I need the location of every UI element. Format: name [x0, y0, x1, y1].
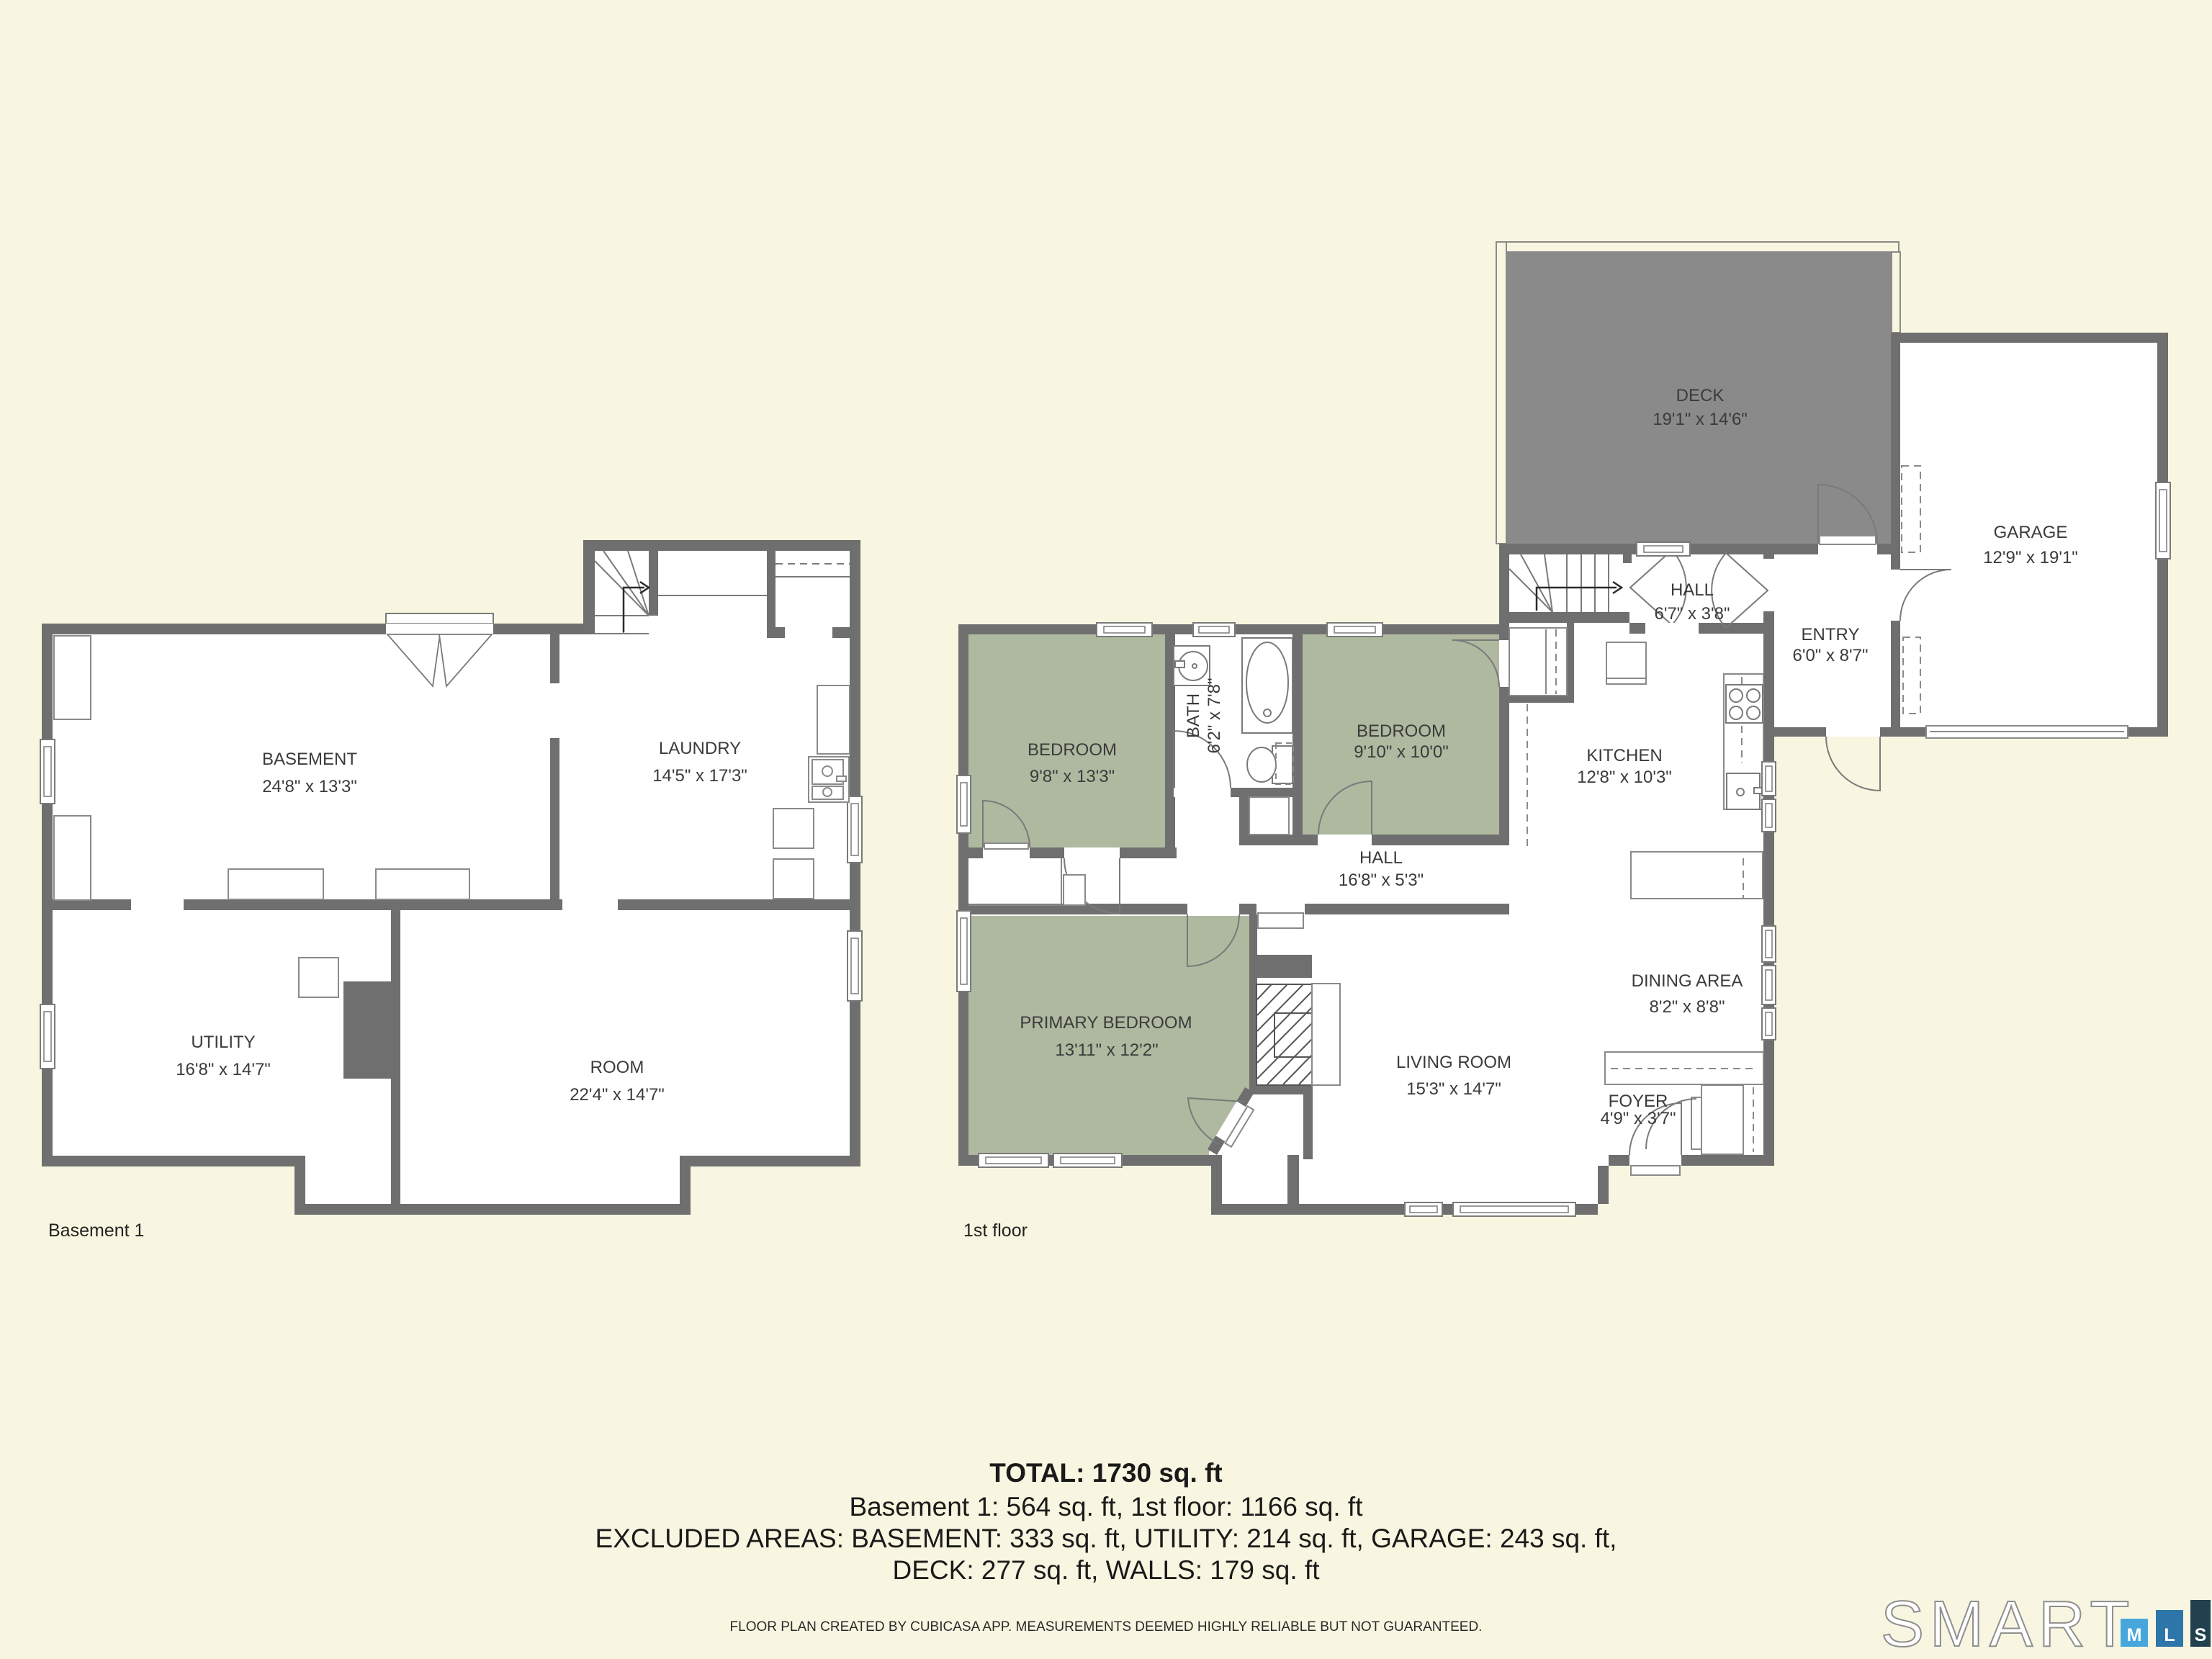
svg-text:DINING AREA: DINING AREA	[1632, 971, 1743, 991]
svg-text:ROOM: ROOM	[590, 1058, 644, 1077]
svg-text:DECK: 277 sq. ft, WALLS: 179 s: DECK: 277 sq. ft, WALLS: 179 sq. ft	[893, 1555, 1321, 1585]
svg-text:16'8" x 14'7": 16'8" x 14'7"	[176, 1060, 271, 1079]
svg-text:LAUNDRY: LAUNDRY	[659, 739, 741, 758]
svg-text:FLOOR PLAN CREATED BY CUBICASA: FLOOR PLAN CREATED BY CUBICASA APP. MEAS…	[730, 1619, 1483, 1635]
svg-text:6'0" x 8'7": 6'0" x 8'7"	[1793, 646, 1869, 665]
svg-text:16'8" x 5'3": 16'8" x 5'3"	[1339, 871, 1424, 890]
svg-text:BEDROOM: BEDROOM	[1357, 721, 1446, 741]
svg-text:HALL: HALL	[1671, 580, 1714, 600]
svg-text:LIVING ROOM: LIVING ROOM	[1396, 1053, 1511, 1072]
svg-text:1st floor: 1st floor	[963, 1220, 1028, 1241]
svg-text:15'3" x 14'7": 15'3" x 14'7"	[1406, 1079, 1501, 1099]
svg-text:4'9" x 3'7": 4'9" x 3'7"	[1601, 1109, 1676, 1128]
svg-text:M: M	[2127, 1625, 2142, 1645]
svg-text:HALL: HALL	[1359, 848, 1403, 868]
svg-text:9'8" x 13'3": 9'8" x 13'3"	[1030, 767, 1115, 786]
svg-text:Basement 1: 564 sq. ft, 1st fl: Basement 1: 564 sq. ft, 1st floor: 1166 …	[850, 1492, 1364, 1521]
svg-text:Basement 1: Basement 1	[48, 1220, 144, 1241]
svg-text:19'1" x 14'6": 19'1" x 14'6"	[1653, 410, 1748, 429]
svg-text:24'8" x 13'3": 24'8" x 13'3"	[262, 777, 357, 796]
svg-text:13'11" x 12'2": 13'11" x 12'2"	[1055, 1040, 1158, 1060]
svg-text:6'7" x 3'8": 6'7" x 3'8"	[1655, 604, 1730, 624]
svg-text:12'8" x 10'3": 12'8" x 10'3"	[1577, 768, 1672, 787]
svg-text:FOYER: FOYER	[1609, 1092, 1668, 1111]
svg-text:6'2" x 7'8": 6'2" x 7'8"	[1205, 678, 1224, 754]
svg-text:TOTAL: 1730 sq. ft: TOTAL: 1730 sq. ft	[989, 1458, 1222, 1488]
svg-text:BATH: BATH	[1184, 693, 1203, 738]
svg-text:ENTRY: ENTRY	[1802, 625, 1860, 644]
svg-text:BASEMENT: BASEMENT	[262, 750, 357, 769]
svg-text:9'10" x 10'0": 9'10" x 10'0"	[1354, 742, 1449, 762]
svg-text:14'5" x 17'3": 14'5" x 17'3"	[652, 766, 747, 786]
svg-text:12'9" x 19'1": 12'9" x 19'1"	[1983, 548, 2078, 567]
svg-text:GARAGE: GARAGE	[1994, 523, 2068, 542]
svg-text:KITCHEN: KITCHEN	[1586, 746, 1662, 765]
svg-text:SMART: SMART	[1881, 1588, 2135, 1659]
svg-text:PRIMARY BEDROOM: PRIMARY BEDROOM	[1020, 1013, 1192, 1033]
svg-text:8'2" x 8'8": 8'2" x 8'8"	[1650, 997, 1725, 1017]
svg-text:BEDROOM: BEDROOM	[1028, 740, 1117, 760]
svg-text:S: S	[2195, 1625, 2207, 1645]
svg-text:DECK: DECK	[1676, 386, 1725, 405]
svg-text:L: L	[2164, 1625, 2175, 1645]
svg-text:EXCLUDED AREAS: BASEMENT: 333: EXCLUDED AREAS: BASEMENT: 333 sq. ft, UT…	[595, 1524, 1617, 1553]
svg-text:UTILITY: UTILITY	[191, 1033, 255, 1052]
svg-text:22'4" x 14'7": 22'4" x 14'7"	[570, 1085, 665, 1105]
